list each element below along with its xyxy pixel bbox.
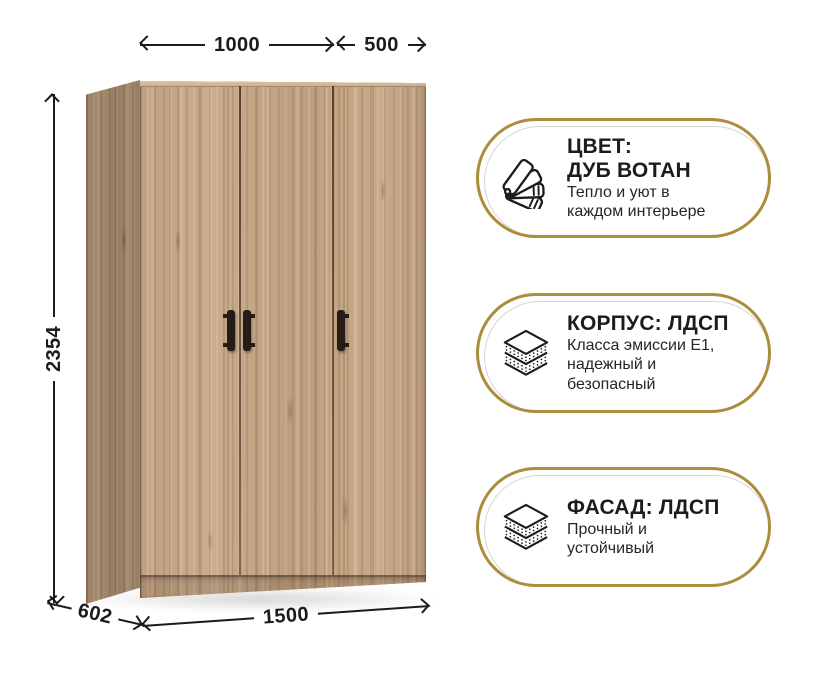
dimension-arrow-right (118, 618, 143, 626)
feature-subtitle-line: Тепло и уют в (567, 183, 705, 202)
feature-badge-fasad: ФАСАД: ЛДСП Прочный и устойчивый (476, 467, 771, 587)
dimension-arrow-left (337, 44, 355, 46)
layers-icon (493, 328, 559, 378)
dimension-width-right-section: 500 (337, 35, 426, 55)
feature-title-line: ДУБ ВОТАН (567, 159, 705, 183)
feature-badge-color: ЦВЕТ: ДУБ ВОТАН Тепло и уют в каждом инт… (476, 118, 771, 238)
feature-subtitle-line: надежный и (567, 355, 729, 374)
feature-subtitle: Класса эмиссии Е1, надежный и безопасный (567, 336, 729, 394)
dimension-arrow-up (53, 94, 55, 317)
feature-subtitle: Прочный и устойчивый (567, 520, 720, 558)
wardrobe-door-3 (334, 86, 426, 575)
feature-text: ФАСАД: ЛДСП Прочный и устойчивый (567, 496, 720, 558)
wardrobe-door-1 (140, 86, 239, 575)
dimension-arrow-left (142, 617, 254, 627)
feature-title-line: ФАСАД: ЛДСП (567, 496, 720, 520)
dimension-height: 2354 (42, 94, 66, 603)
door-handle (227, 310, 235, 351)
wardrobe-door-2 (241, 86, 332, 575)
dimension-value: 1000 (205, 35, 269, 55)
door-handle (337, 310, 345, 351)
wardrobe-side-panel (86, 80, 140, 604)
feature-subtitle-line: Прочный и (567, 520, 720, 539)
feature-subtitle-line: Класса эмиссии Е1, (567, 336, 729, 355)
door-handle (243, 310, 251, 351)
feature-subtitle-line: безопасный (567, 375, 729, 394)
dimension-value: 2354 (22, 325, 86, 371)
dimension-width-left-section: 1000 (140, 35, 334, 55)
feature-title-line: ЦВЕТ: (567, 135, 705, 159)
feature-text: ЦВЕТ: ДУБ ВОТАН Тепло и уют в каждом инт… (567, 135, 705, 221)
dimension-arrow-right (318, 605, 430, 615)
door-gap (332, 86, 334, 575)
dimension-arrow-left (140, 44, 205, 46)
wardrobe-front (140, 81, 426, 598)
layers-icon (493, 502, 559, 552)
feature-title-line: КОРПУС: ЛДСП (567, 312, 729, 336)
feature-subtitle-line: устойчивый (567, 539, 720, 558)
product-infographic: 1000 500 2354 602 1500 (0, 0, 816, 700)
feature-subtitle-line: каждом интерьере (567, 202, 705, 221)
dimension-arrow-left (47, 602, 72, 610)
feature-title: КОРПУС: ЛДСП (567, 312, 729, 336)
dimension-arrow-right (408, 44, 426, 46)
door-gap (239, 86, 241, 575)
color-swatch-fan-icon (493, 147, 559, 209)
feature-title: ЦВЕТ: ДУБ ВОТАН (567, 135, 705, 183)
feature-text: КОРПУС: ЛДСП Класса эмиссии Е1, надежный… (567, 312, 729, 394)
dimension-arrow-down (53, 381, 55, 604)
feature-title: ФАСАД: ЛДСП (567, 496, 720, 520)
dimension-arrow-right (269, 44, 334, 46)
feature-badge-korpus: КОРПУС: ЛДСП Класса эмиссии Е1, надежный… (476, 293, 771, 413)
dimension-value: 500 (355, 35, 408, 55)
dimension-value: 1500 (253, 604, 318, 628)
feature-subtitle: Тепло и уют в каждом интерьере (567, 183, 705, 221)
